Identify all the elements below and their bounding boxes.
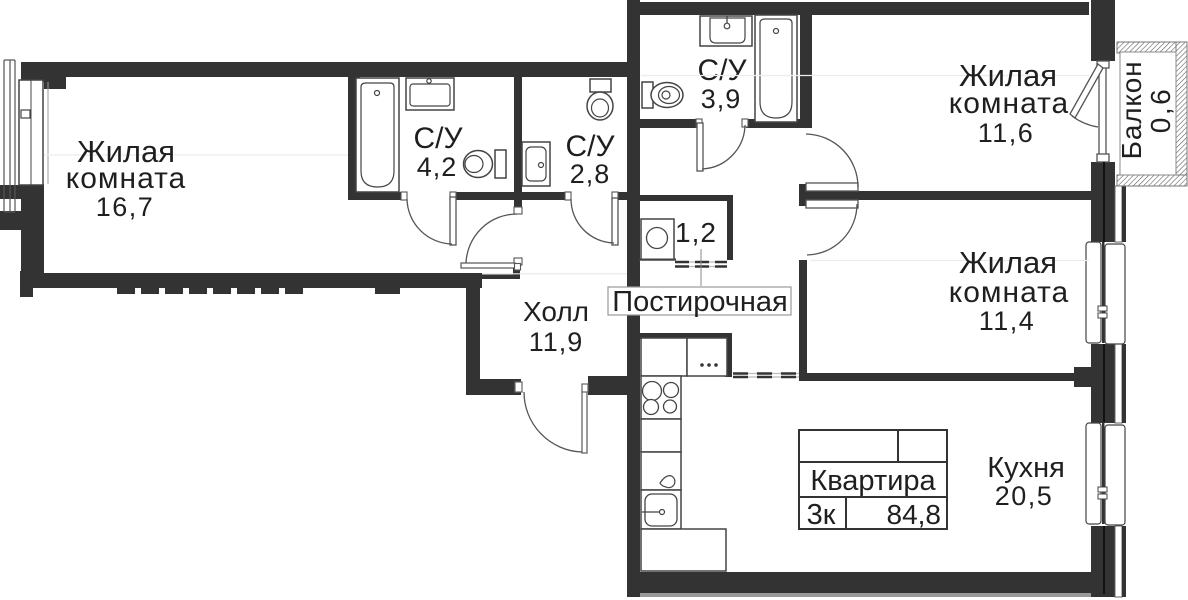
svg-text:комната: комната	[949, 87, 1069, 120]
svg-text:1,2: 1,2	[675, 217, 717, 248]
svg-text:С/У: С/У	[697, 54, 747, 87]
svg-text:Постирочная: Постирочная	[612, 286, 788, 318]
svg-text:комната: комната	[949, 276, 1069, 309]
svg-text:3к: 3к	[807, 499, 836, 531]
svg-text:С/У: С/У	[413, 122, 463, 155]
svg-text:комната: комната	[66, 162, 186, 195]
svg-text:84,8: 84,8	[887, 499, 942, 530]
svg-text:4,2: 4,2	[417, 152, 458, 182]
svg-text:11,6: 11,6	[978, 118, 1035, 148]
svg-text:11,9: 11,9	[529, 327, 584, 357]
svg-text:3,9: 3,9	[701, 84, 742, 114]
svg-text:Квартира: Квартира	[810, 465, 936, 497]
svg-text:Холл: Холл	[523, 296, 589, 327]
svg-text:Балкон: Балкон	[1116, 61, 1147, 160]
svg-text:20,5: 20,5	[995, 481, 1054, 511]
svg-text:16,7: 16,7	[96, 192, 155, 222]
svg-text:Жилая: Жилая	[959, 245, 1057, 280]
svg-text:Кухня: Кухня	[987, 452, 1065, 484]
svg-text:0,6: 0,6	[1145, 87, 1176, 133]
svg-text:11,4: 11,4	[979, 306, 1036, 336]
svg-text:2,8: 2,8	[570, 159, 611, 189]
